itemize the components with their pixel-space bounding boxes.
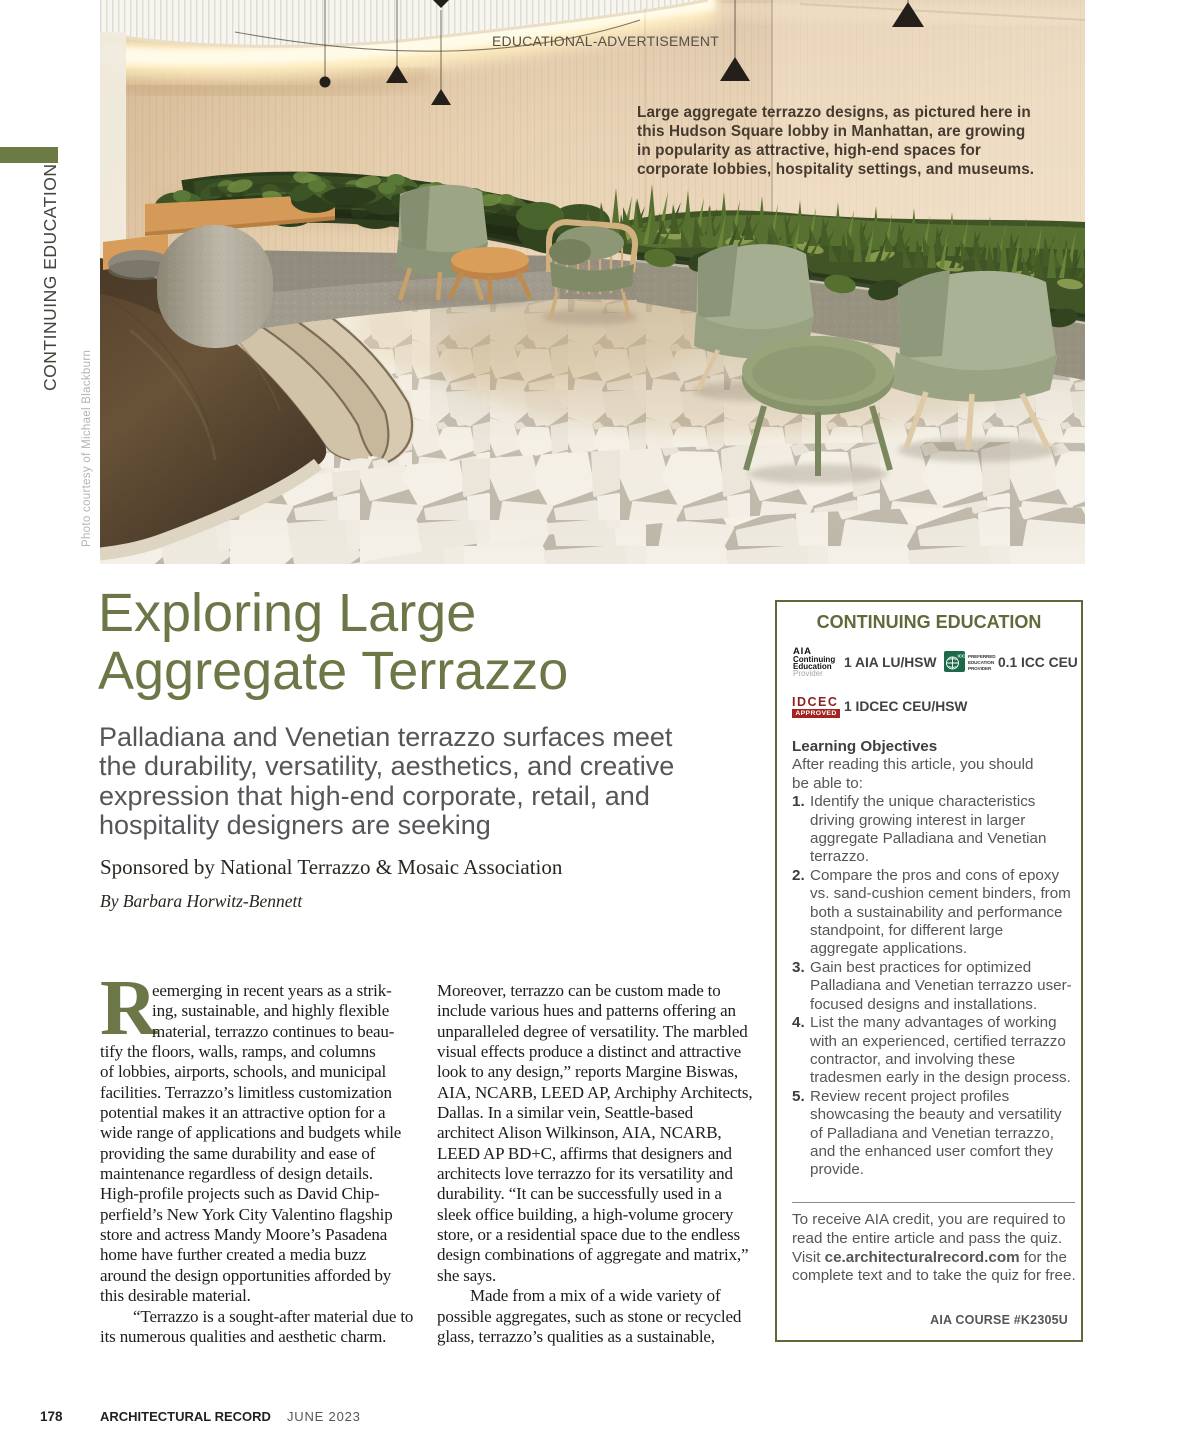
svg-text:ICC: ICC — [958, 654, 966, 659]
